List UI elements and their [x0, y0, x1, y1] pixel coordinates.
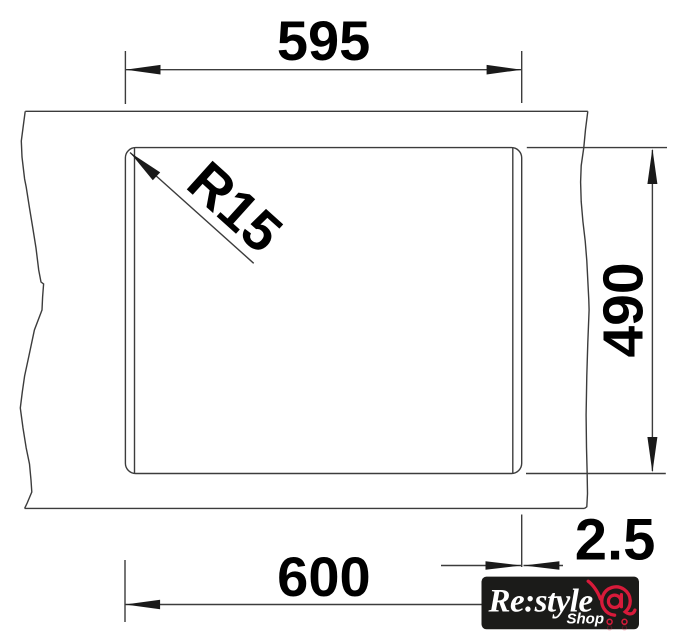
- svg-text:Shop: Shop: [567, 610, 605, 627]
- svg-text:2.5: 2.5: [575, 508, 656, 573]
- svg-text:595: 595: [277, 9, 370, 72]
- svg-text:600: 600: [277, 545, 370, 608]
- svg-text:R15: R15: [176, 149, 295, 265]
- svg-text:490: 490: [591, 262, 655, 357]
